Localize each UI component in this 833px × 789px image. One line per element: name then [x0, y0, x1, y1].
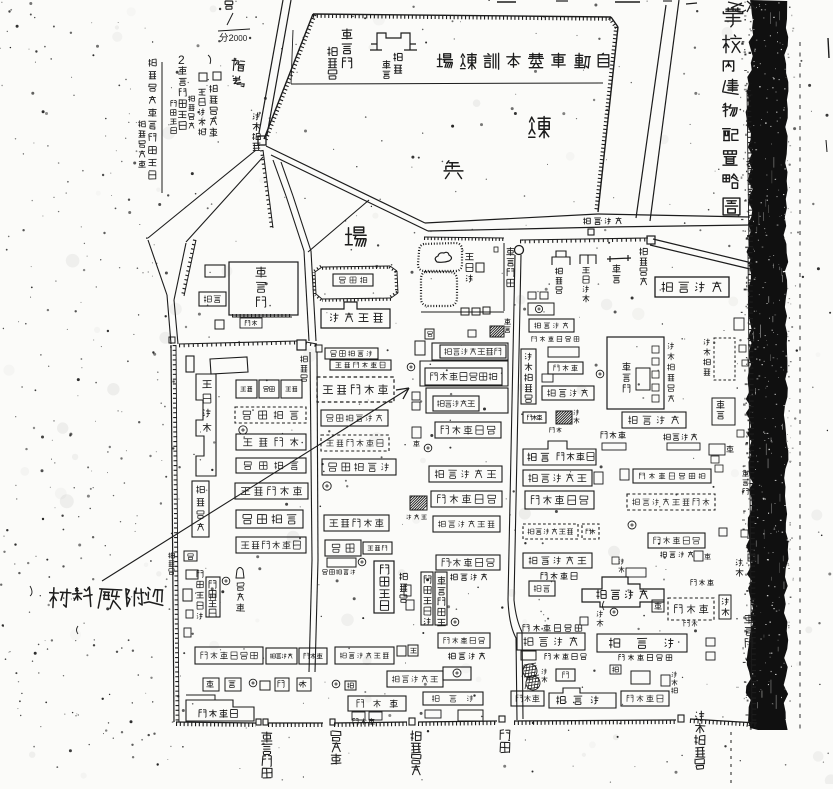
svg-text:分2000: 分2000 — [219, 33, 248, 44]
svg-text:2: 2 — [178, 53, 185, 67]
